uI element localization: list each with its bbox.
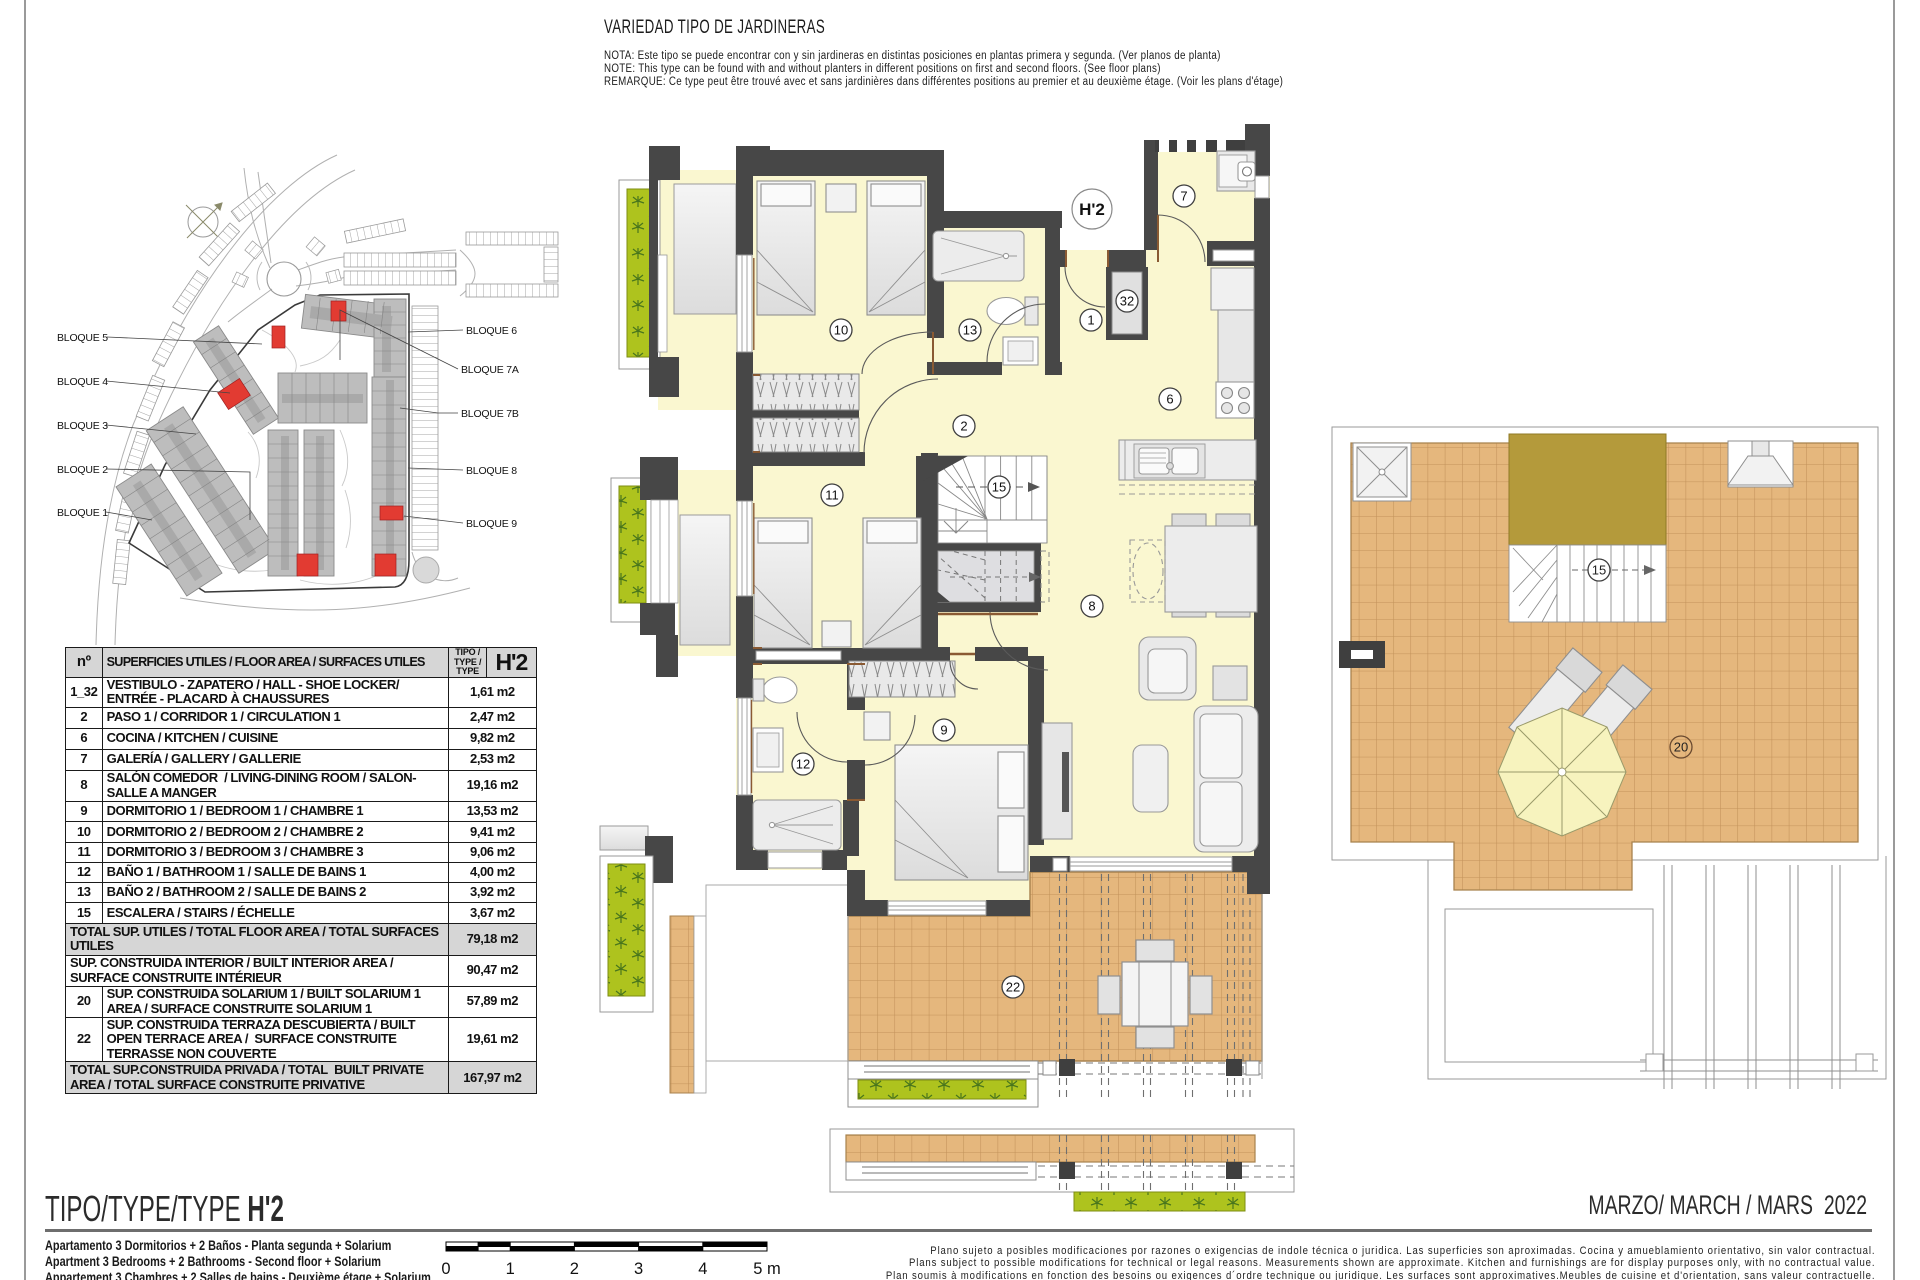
- svg-text:BLOQUE 1: BLOQUE 1: [57, 507, 108, 519]
- svg-text:1: 1: [1087, 313, 1094, 328]
- svg-text:9: 9: [940, 723, 947, 738]
- svg-text:BLOQUE 2: BLOQUE 2: [57, 464, 108, 476]
- svg-text:BLOQUE 8: BLOQUE 8: [466, 465, 517, 477]
- svg-text:BLOQUE 9: BLOQUE 9: [466, 518, 517, 530]
- svg-text:H'2: H'2: [1079, 200, 1105, 219]
- svg-text:15: 15: [992, 480, 1006, 495]
- svg-text:BLOQUE 7A: BLOQUE 7A: [461, 364, 519, 376]
- svg-text:7: 7: [1180, 189, 1187, 204]
- svg-text:6: 6: [1166, 392, 1173, 407]
- svg-text:22: 22: [1006, 980, 1020, 995]
- svg-text:11: 11: [825, 488, 839, 503]
- svg-text:8: 8: [1088, 599, 1095, 614]
- svg-text:20: 20: [1674, 740, 1688, 755]
- svg-text:BLOQUE 7B: BLOQUE 7B: [461, 408, 519, 420]
- svg-text:2: 2: [960, 419, 967, 434]
- svg-text:15: 15: [1592, 563, 1606, 578]
- svg-text:BLOQUE 3: BLOQUE 3: [57, 420, 108, 432]
- svg-text:12: 12: [796, 757, 810, 772]
- svg-text:10: 10: [834, 323, 848, 338]
- svg-text:13: 13: [963, 323, 977, 338]
- svg-text:32: 32: [1120, 294, 1134, 309]
- svg-text:BLOQUE 5: BLOQUE 5: [57, 332, 108, 344]
- svg-text:BLOQUE 6: BLOQUE 6: [466, 325, 517, 337]
- svg-text:BLOQUE 4: BLOQUE 4: [57, 376, 108, 388]
